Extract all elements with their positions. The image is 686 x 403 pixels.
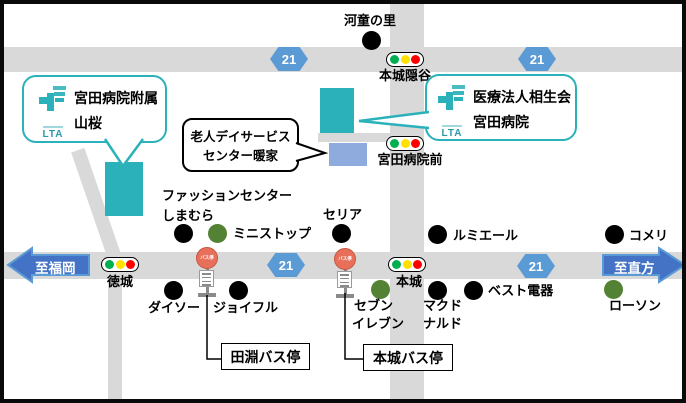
signal-yellow-lamp — [403, 260, 412, 269]
signal-yellow-lamp — [116, 260, 125, 269]
day-service-callout-tail — [296, 143, 325, 161]
poi-dot-lawson — [604, 280, 623, 299]
road-hospital-side — [318, 133, 394, 142]
signal-red-lamp — [413, 260, 422, 269]
signal-red-lamp — [411, 139, 420, 148]
poi-dot-shimamura — [174, 224, 193, 243]
miyata-line1: 医療法人相生会 — [473, 90, 571, 104]
honjo-bus-stop-box: 本城バス停 — [363, 344, 453, 371]
poi-dot-seven-eleven — [371, 280, 390, 299]
lta-cross-icon — [437, 84, 467, 114]
poi-label-fashion-center: ファッションセンター — [162, 188, 292, 204]
yamazakura-line2: 山桜 — [74, 116, 158, 130]
lta-cross-icon — [38, 85, 68, 115]
lta-logo-text: LTA — [36, 130, 70, 140]
yamazakura-callout: LTA 宮田病院附属 山桜 — [22, 75, 167, 143]
traffic-light-icon — [101, 257, 139, 272]
yamazakura-callout-text: 宮田病院附属 山桜 — [74, 77, 158, 130]
arrow-west-label: 至福岡 — [35, 257, 76, 277]
lta-logo-subline — [442, 125, 462, 127]
bus-stop-tabuchi-icon: バス停 — [195, 247, 219, 299]
day-service-callout: 老人デイサービス センター暖家 — [182, 118, 299, 172]
signal-yellow-lamp — [401, 139, 410, 148]
road-top-horizontal — [4, 47, 682, 72]
arrow-east-label: 至直方 — [614, 257, 655, 277]
poi-label-kappa-no-sato: 河童の里 — [344, 13, 396, 29]
signal-green-lamp — [390, 55, 399, 64]
signal-label-honjo: 本城 — [389, 274, 429, 290]
poi-dot-daiso — [164, 281, 183, 300]
traffic-light-icon — [388, 257, 426, 272]
signal-red-lamp — [411, 55, 420, 64]
signal-green-lamp — [392, 260, 401, 269]
tabuchi-bus-stop-box: 田淵バス停 — [221, 343, 310, 370]
signal-yellow-lamp — [401, 55, 410, 64]
poi-label-lumiere: ルミエール — [453, 228, 518, 244]
lta-logo-subline — [43, 126, 63, 128]
poi-label-shimamura: しまむら — [162, 208, 214, 224]
poi-label-daiso: ダイソー — [148, 300, 200, 316]
bus-stop-sign: バス停 — [196, 247, 218, 269]
access-map: 21 21 21 21 本城隠谷 宮田病院前 徳城 本城 至福岡 至直方 — [0, 0, 686, 403]
miyata-line2: 宮田病院 — [473, 115, 571, 129]
miyata-callout-text: 医療法人相生会 宮田病院 — [473, 76, 571, 129]
yamazakura-building — [105, 162, 143, 216]
day-service-callout-text: 老人デイサービス センター暖家 — [184, 120, 297, 167]
poi-label-mcdonalds-line1: マクド — [423, 298, 462, 314]
yamazakura-line1: 宮田病院附属 — [74, 91, 158, 105]
bus-stop-timetable — [199, 270, 214, 287]
route-number: 21 — [530, 52, 544, 67]
poi-label-komeri: コメリ — [629, 228, 668, 244]
route-number: 21 — [529, 259, 543, 274]
route-number: 21 — [279, 258, 293, 273]
day-service-line2: センター暖家 — [184, 147, 297, 166]
signal-green-lamp — [390, 139, 399, 148]
miyata-hospital-building — [320, 88, 354, 133]
signal-red-lamp — [126, 260, 135, 269]
poi-dot-joyful — [229, 281, 248, 300]
poi-dot-kappa-no-sato — [362, 31, 381, 50]
bus-stop-sign: バス停 — [334, 248, 356, 270]
bus-stop-timetable — [337, 271, 352, 288]
poi-label-seven-line2: イレブン — [352, 316, 404, 332]
route-number: 21 — [282, 52, 296, 67]
bus-stop-honjo-icon: バス停 — [333, 248, 357, 300]
miyata-callout-content: LTA 医療法人相生会 宮田病院 — [427, 76, 575, 139]
bus-stop-base — [198, 293, 216, 297]
signal-green-lamp — [105, 260, 114, 269]
poi-dot-ministop — [208, 224, 227, 243]
signal-label-miyata-byoin-mae: 宮田病院前 — [376, 152, 444, 168]
poi-label-ministop: ミニストップ — [233, 226, 311, 242]
poi-label-lawson: ローソン — [609, 298, 661, 314]
poi-label-joyful: ジョイフル — [213, 300, 278, 316]
traffic-light-icon — [386, 136, 424, 151]
poi-dot-komeri — [605, 225, 624, 244]
lta-logo: LTA — [36, 85, 70, 140]
day-service-building — [329, 143, 367, 166]
poi-label-best-denki: ベスト電器 — [488, 283, 553, 299]
poi-dot-seria — [332, 224, 351, 243]
traffic-light-icon — [386, 52, 424, 67]
poi-label-seven-line1: セブン — [354, 298, 393, 314]
lta-logo-text: LTA — [435, 129, 469, 139]
poi-dot-best-denki — [464, 281, 483, 300]
poi-label-mcdonalds-line2: ナルド — [423, 316, 462, 332]
signal-label-tokujo: 徳城 — [99, 274, 141, 290]
yamazakura-callout-content: LTA 宮田病院附属 山桜 — [24, 77, 165, 141]
miyata-hospital-callout: LTA 医療法人相生会 宮田病院 — [425, 74, 577, 141]
poi-label-seria: セリア — [323, 207, 362, 223]
day-service-line1: 老人デイサービス — [184, 128, 297, 147]
lta-logo: LTA — [435, 84, 469, 139]
poi-dot-lumiere — [428, 225, 447, 244]
bus-stop-base — [336, 294, 354, 298]
